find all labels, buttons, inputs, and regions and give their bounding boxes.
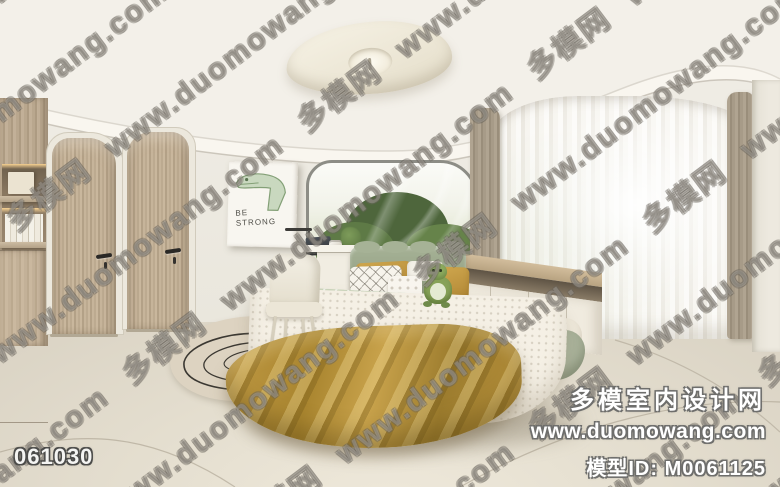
headboard-curve xyxy=(438,241,464,253)
plush-toy-eye xyxy=(439,269,442,272)
credit-site-name: 多模室内设计网 xyxy=(531,380,766,415)
door-handle xyxy=(96,253,112,259)
door-right xyxy=(127,132,189,330)
plush-toy-foot xyxy=(441,302,450,308)
shelf-board xyxy=(0,196,46,202)
cabinet-seam xyxy=(0,422,48,423)
shelf-light-glow xyxy=(2,164,46,169)
site-credit: 多模室内设计网 www.duomowang.com 模型ID: M0061125 xyxy=(531,380,766,481)
shelf-light-glow xyxy=(2,208,46,213)
plush-toy-eye xyxy=(432,269,435,272)
headboard-curve xyxy=(382,241,408,253)
door-threshold xyxy=(50,334,118,337)
curtain-panel-right xyxy=(727,92,754,339)
art-print-text: BE STRONG xyxy=(235,207,276,229)
headboard-curve xyxy=(354,241,380,253)
plush-toy-head xyxy=(427,263,447,280)
bookshelf-unit xyxy=(0,98,48,346)
books xyxy=(5,214,43,242)
image-id-label: 061030 xyxy=(14,444,93,470)
door-lock xyxy=(104,262,107,269)
credit-model-id: 模型ID: M0061125 xyxy=(531,452,766,481)
desk-chair-seat xyxy=(266,302,322,317)
wall-art-print: BE STRONG xyxy=(227,161,298,248)
door-handle xyxy=(165,248,181,254)
lower-cabinet xyxy=(0,250,48,346)
door-lock xyxy=(173,257,176,264)
model-id-value: M0061125 xyxy=(665,458,766,480)
model-id-label: 模型ID: xyxy=(586,458,658,480)
plush-toy-belly xyxy=(430,283,446,300)
headboard-curve xyxy=(410,241,436,253)
right-wall xyxy=(752,80,780,352)
art-print-line2: STRONG xyxy=(236,217,277,229)
plush-toy-foot xyxy=(423,301,432,307)
storage-box xyxy=(8,172,34,194)
credit-site-url: www.duomowang.com xyxy=(531,420,766,444)
shelf-board xyxy=(0,242,46,248)
panorama-screenshot: BE STRONG xyxy=(0,0,780,487)
desk-chair-back xyxy=(269,253,321,307)
door-left xyxy=(52,138,116,335)
